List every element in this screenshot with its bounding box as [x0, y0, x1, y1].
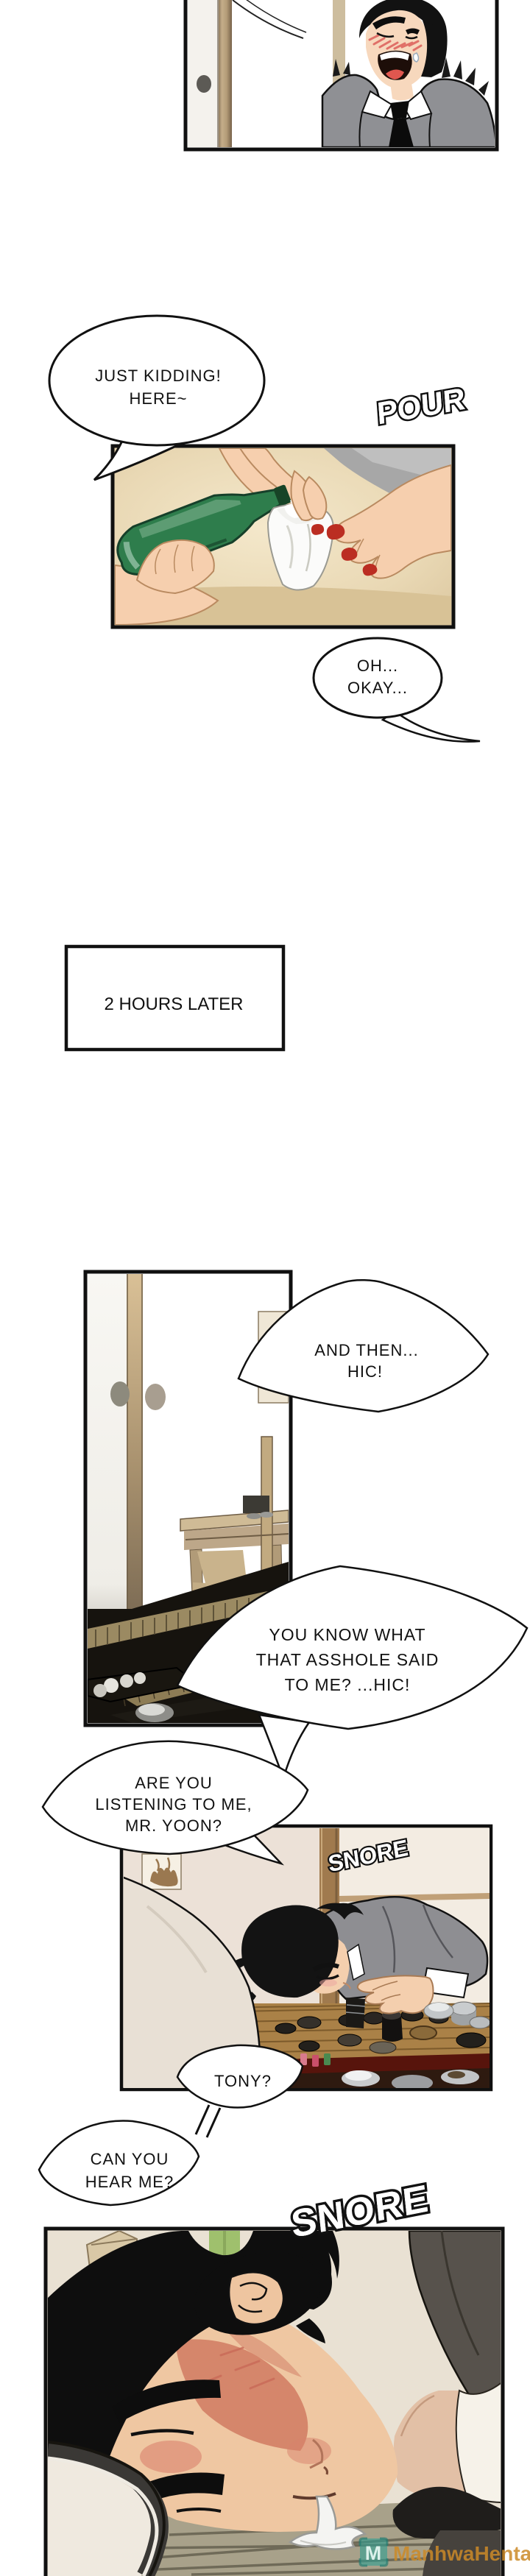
svg-text:M: M	[365, 2542, 382, 2564]
svg-text:MR. YOON?: MR. YOON?	[125, 1816, 222, 1835]
svg-text:HEAR ME?: HEAR ME?	[85, 2173, 174, 2191]
svg-text:POUR: POUR	[376, 381, 467, 431]
svg-text:CAN YOU: CAN YOU	[91, 2150, 169, 2168]
svg-text:TONY?: TONY?	[214, 2072, 272, 2090]
svg-text:ManhwaHentai: ManhwaHentai	[393, 2542, 530, 2565]
svg-text:HIC!: HIC!	[347, 1362, 383, 1381]
svg-text:TO ME? ...HIC!: TO ME? ...HIC!	[285, 1675, 411, 1694]
svg-text:YOU KNOW WHAT: YOU KNOW WHAT	[269, 1625, 425, 1644]
svg-text:2 HOURS LATER: 2 HOURS LATER	[105, 994, 244, 1014]
svg-text:OH...: OH...	[357, 657, 398, 675]
svg-text:THAT ASSHOLE SAID: THAT ASSHOLE SAID	[256, 1650, 439, 1669]
svg-text:JUST KIDDING!: JUST KIDDING!	[95, 367, 222, 385]
svg-text:LISTENING TO ME,: LISTENING TO ME,	[95, 1795, 252, 1814]
svg-text:ARE YOU: ARE YOU	[135, 1774, 213, 1792]
svg-text:HERE~: HERE~	[130, 389, 188, 408]
svg-text:AND THEN...: AND THEN...	[314, 1341, 418, 1359]
svg-text:OKAY...: OKAY...	[347, 679, 408, 697]
